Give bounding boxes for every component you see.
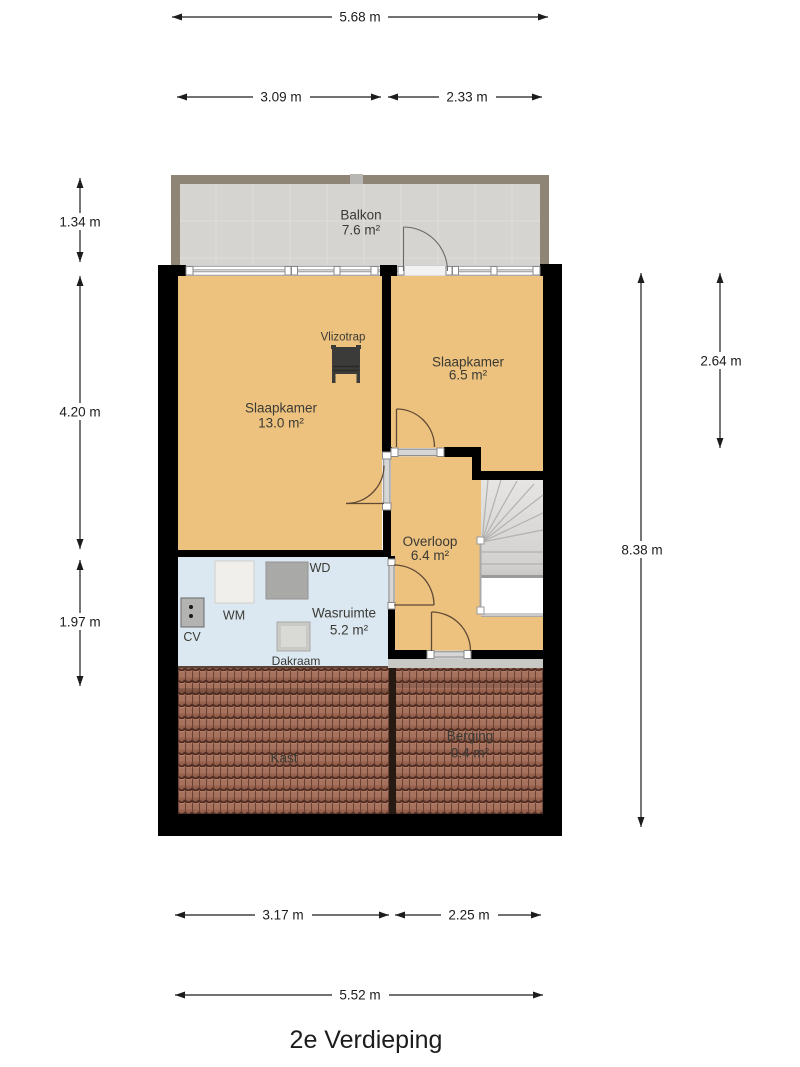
svg-text:Slaapkamer: Slaapkamer — [245, 401, 318, 416]
svg-text:2e Verdieping: 2e Verdieping — [290, 1026, 443, 1054]
svg-text:13.0 m²: 13.0 m² — [258, 416, 304, 431]
svg-text:2.25 m: 2.25 m — [448, 908, 489, 923]
svg-text:0.4 m²: 0.4 m² — [451, 746, 490, 761]
svg-text:Dakraam: Dakraam — [272, 654, 321, 668]
svg-text:5.2 m²: 5.2 m² — [330, 623, 369, 638]
svg-text:Wasruimte: Wasruimte — [312, 606, 376, 621]
svg-text:8.38 m: 8.38 m — [621, 543, 662, 558]
svg-text:Berging: Berging — [447, 729, 494, 744]
svg-text:5.68 m: 5.68 m — [339, 10, 380, 25]
svg-text:1.97 m: 1.97 m — [59, 615, 100, 630]
svg-text:5.52 m: 5.52 m — [339, 988, 380, 1003]
svg-text:Balkon: Balkon — [340, 208, 381, 223]
svg-text:Kast: Kast — [270, 751, 297, 766]
svg-text:6.5 m²: 6.5 m² — [449, 368, 488, 383]
svg-text:CV: CV — [183, 630, 201, 644]
svg-text:3.09 m: 3.09 m — [260, 90, 301, 105]
svg-text:WM: WM — [223, 609, 245, 623]
svg-text:Vlizotrap: Vlizotrap — [321, 332, 366, 344]
svg-text:7.6 m²: 7.6 m² — [342, 223, 381, 238]
svg-text:4.20 m: 4.20 m — [59, 405, 100, 420]
svg-text:2.64 m: 2.64 m — [700, 354, 741, 369]
svg-text:1.34 m: 1.34 m — [59, 215, 100, 230]
svg-text:6.4 m²: 6.4 m² — [411, 548, 450, 563]
svg-text:3.17 m: 3.17 m — [262, 908, 303, 923]
svg-text:2.33 m: 2.33 m — [446, 90, 487, 105]
svg-text:WD: WD — [310, 561, 331, 575]
svg-text:Overloop: Overloop — [403, 534, 458, 549]
